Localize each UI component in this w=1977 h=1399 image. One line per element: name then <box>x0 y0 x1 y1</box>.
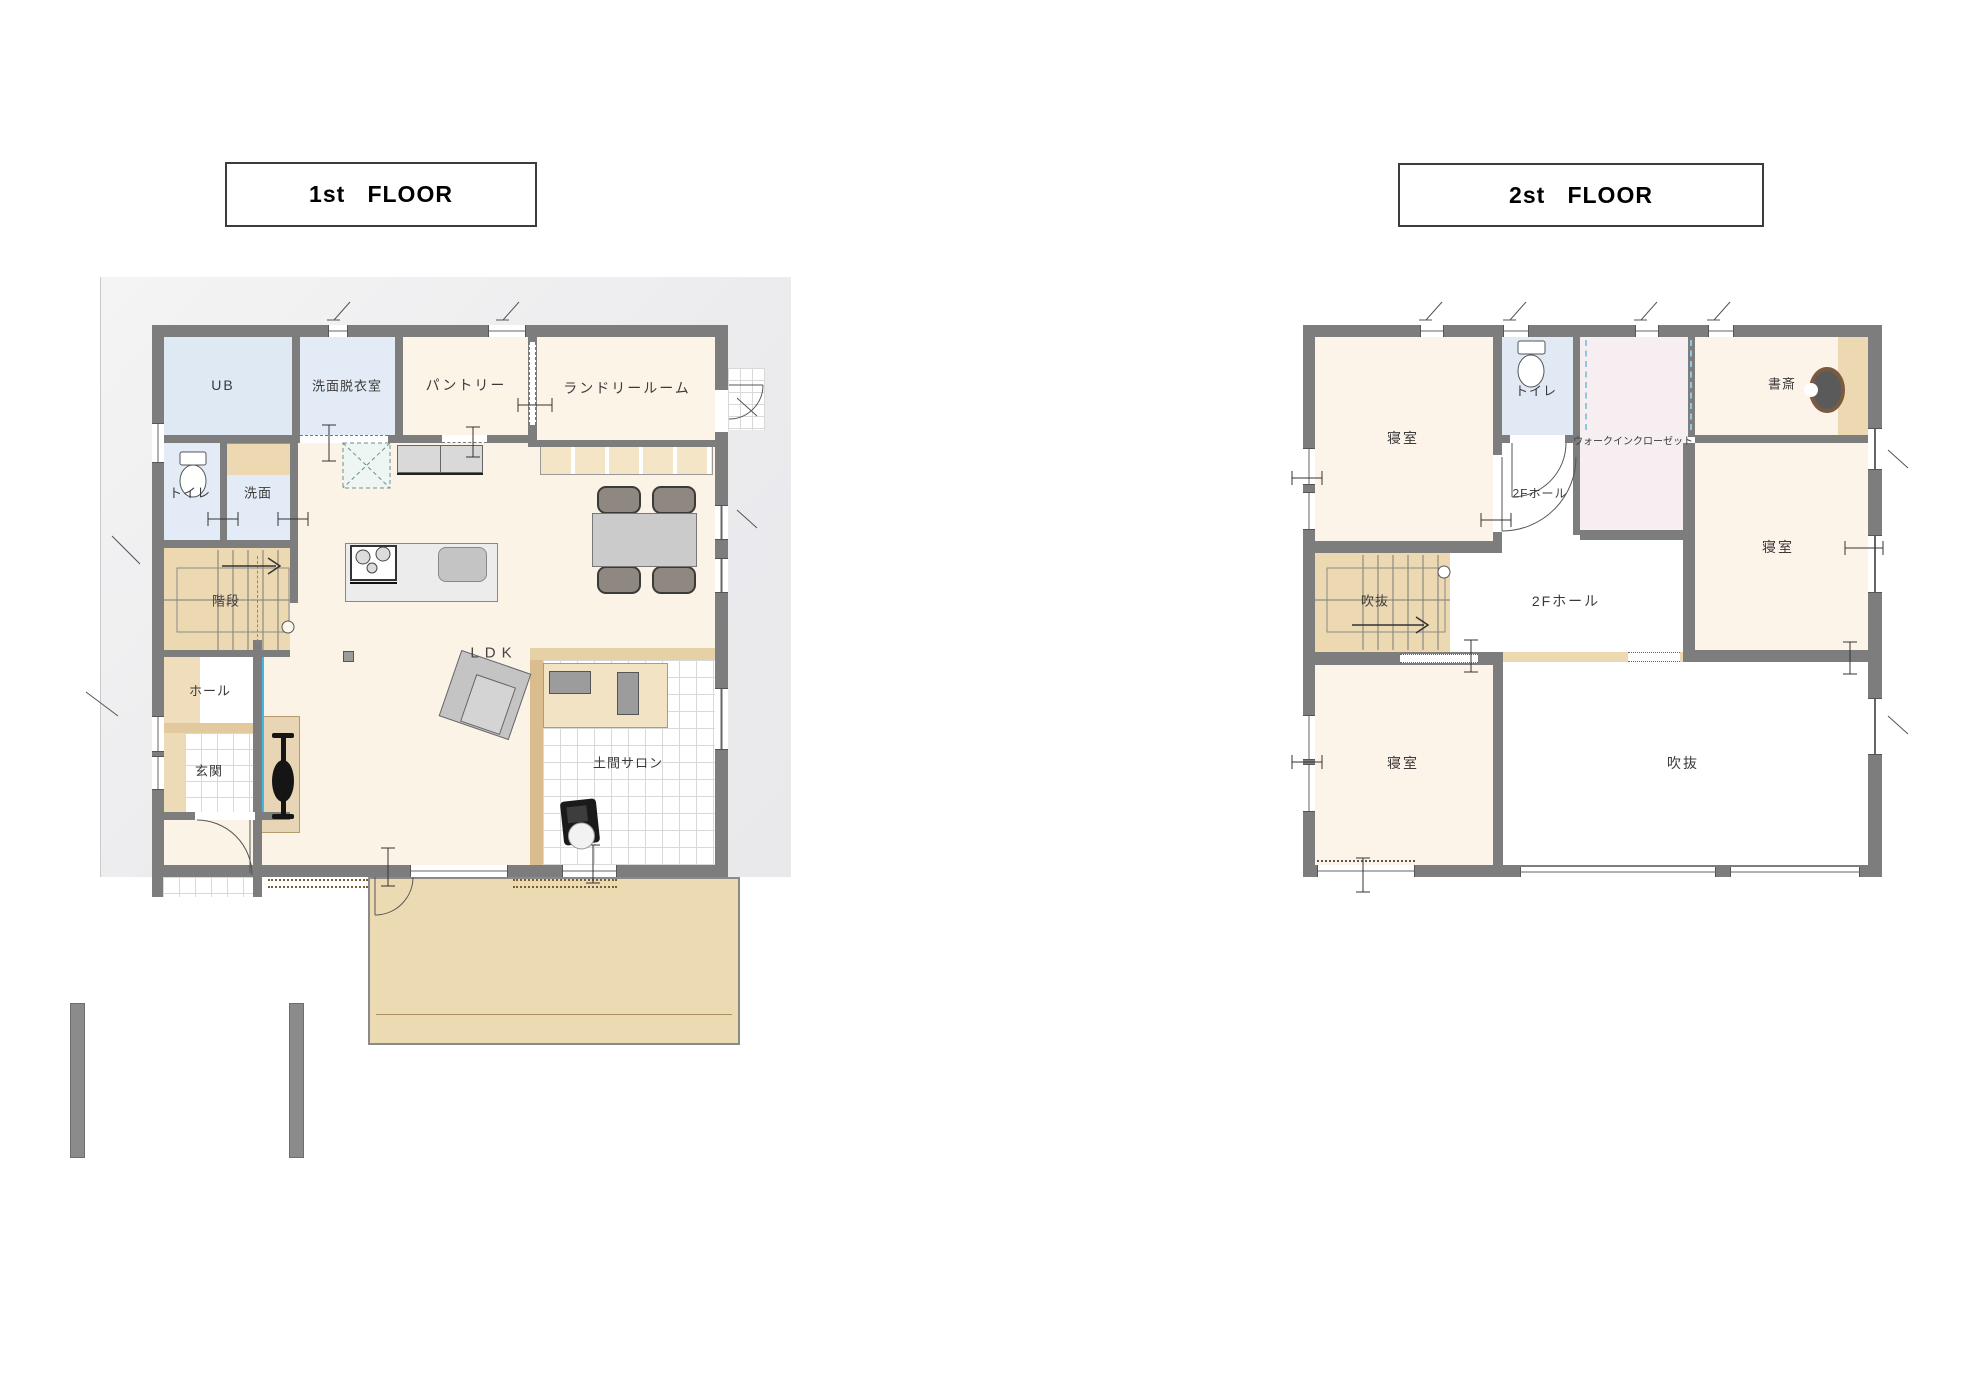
label-ldk: LDK <box>470 645 517 662</box>
dining-table <box>592 513 697 567</box>
porch-tiles <box>163 877 260 897</box>
kitchen-back-cabinet-edge <box>397 473 483 475</box>
label-toilet-1f: トイレ <box>169 483 211 502</box>
wood-deck <box>368 877 740 1045</box>
laundry-porch-tiles <box>728 368 765 430</box>
doma-frame-top <box>530 648 715 660</box>
title-2nd-floor: 2st FLOOR <box>1398 163 1764 227</box>
boundary-bar-left <box>70 1003 85 1158</box>
kitchen-back-cabinet-divider <box>440 445 441 473</box>
label-genkan: 玄関 <box>195 761 223 780</box>
laundry-closet-row <box>540 445 713 475</box>
label-wic: ウォークインクローゼット <box>1573 433 1693 448</box>
title-1st-floor: 1st FLOOR <box>225 162 537 227</box>
label-hall-small-2f: 2Fホール <box>1512 485 1567 502</box>
label-stair-void: 吹抜 <box>1361 591 1389 610</box>
deck-threshold-dots-2 <box>513 879 617 888</box>
label-laundry: ランドリールーム <box>563 378 691 398</box>
dining-chair-sw <box>597 566 641 594</box>
dining-chair-ne <box>652 486 696 514</box>
senmen-counter <box>227 443 290 475</box>
label-toilet-2f: トイレ <box>1515 381 1557 400</box>
label-hall-center-2f: 2Fホール <box>1532 591 1600 611</box>
kitchen-sink <box>438 547 487 582</box>
genkan-step <box>164 723 253 733</box>
boundary-bar-right <box>289 1003 304 1158</box>
sofa-seat <box>460 674 516 735</box>
label-pantry: パントリー <box>426 375 507 395</box>
title-2nd-floor-text: 2st FLOOR <box>1509 182 1653 209</box>
doma-frame-left <box>530 648 543 865</box>
deck-threshold-dots-1 <box>268 879 368 888</box>
label-hall: ホール <box>189 681 231 700</box>
dining-chair-nw <box>597 486 641 514</box>
study-desk <box>1838 337 1868 437</box>
label-kaidan: 階段 <box>212 591 240 610</box>
cooktop <box>350 545 397 581</box>
label-senmen-datsuishitsu: 洗面脱衣室 <box>312 376 382 395</box>
label-ub: UB <box>211 377 234 393</box>
pillar <box>343 651 354 662</box>
label-bedroom-nw: 寝室 <box>1387 428 1419 448</box>
label-doma-salon: 土間サロン <box>593 753 663 772</box>
doma-bench <box>549 671 591 694</box>
dining-chair-se <box>652 566 696 594</box>
doma-chair <box>617 672 639 715</box>
hall-opening-dashed <box>257 556 258 642</box>
label-senmen: 洗面 <box>244 483 272 502</box>
floorplan-canvas: 1st FLOOR 2st FLOOR <box>0 0 1977 1399</box>
label-bedroom-e: 寝室 <box>1762 537 1794 557</box>
label-void: 吹抜 <box>1667 753 1699 773</box>
wood-deck-edge-line <box>376 1014 732 1015</box>
label-study: 書斎 <box>1768 374 1796 393</box>
label-bedroom-sw: 寝室 <box>1387 753 1419 773</box>
title-1st-floor-text: 1st FLOOR <box>309 181 453 208</box>
cooktop-front-line <box>350 582 397 584</box>
